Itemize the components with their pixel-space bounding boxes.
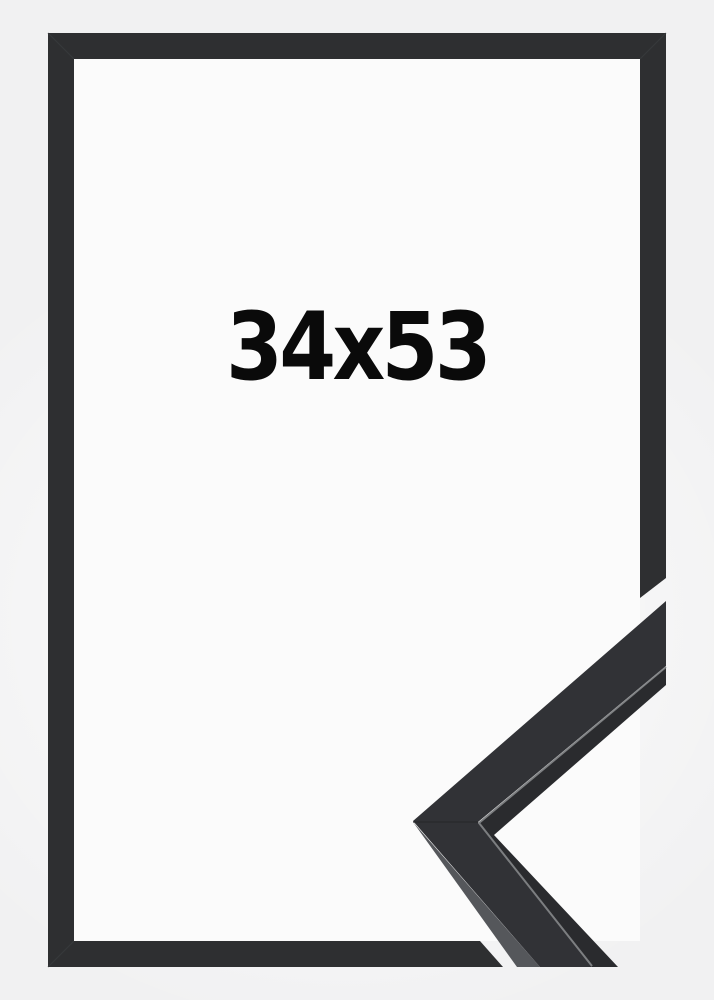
picture-frame	[48, 33, 666, 967]
frame-left-bar	[48, 59, 74, 941]
frame-interior	[74, 59, 640, 941]
size-label: 34x53	[46, 301, 667, 395]
frame-bottom-bar	[48, 941, 503, 967]
frame-top-bar	[48, 33, 666, 59]
frame-photo-canvas	[0, 0, 714, 1000]
frame-product-photo: 34x53	[0, 0, 714, 1000]
